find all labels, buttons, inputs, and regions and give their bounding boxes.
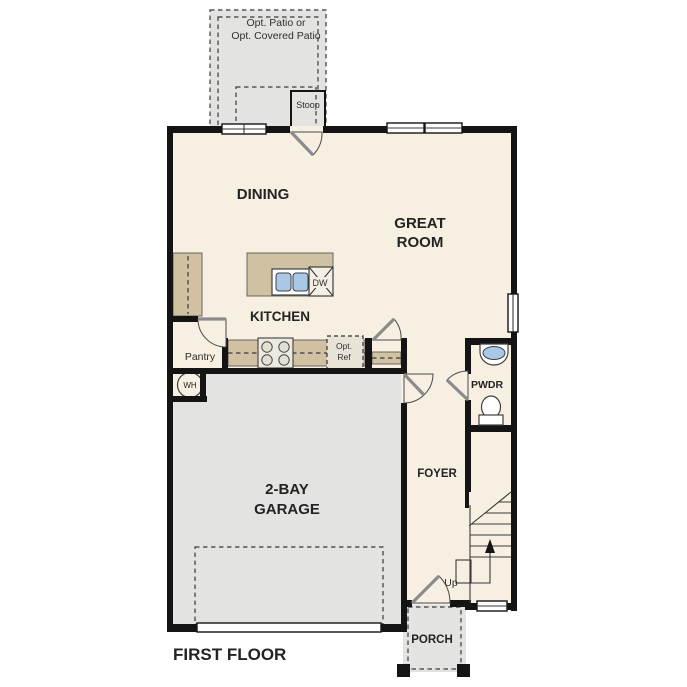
burner	[279, 342, 289, 352]
garage-label-1: 2-BAY	[265, 481, 309, 498]
garage-door	[197, 623, 381, 632]
wall-segment	[465, 338, 471, 374]
dishwasher-label: DW	[313, 278, 328, 288]
patio-label-2: Opt. Covered Patio	[231, 30, 320, 42]
garage-floor	[173, 374, 401, 624]
wall-segment	[167, 624, 197, 632]
island-fixtures: DW	[272, 267, 333, 296]
great-room-label-1: GREAT	[394, 215, 445, 232]
toilet-tank	[479, 415, 503, 425]
sink-basin	[293, 273, 308, 291]
wall-segment	[167, 126, 517, 133]
wall-segment	[200, 374, 206, 400]
burner	[262, 342, 272, 352]
garage-label-2: GARAGE	[254, 501, 320, 518]
dining-label: DINING	[237, 186, 290, 203]
opt-ref-label-2: Ref	[337, 352, 351, 362]
plan-title: FIRST FLOOR	[173, 645, 286, 664]
wall-segment	[465, 400, 471, 432]
wall-segment	[401, 338, 407, 374]
pantry-label: Pantry	[185, 351, 216, 363]
porch-label: PORCH	[411, 634, 453, 646]
burner	[279, 355, 289, 365]
floor-plan-drawing: DW Opt. Ref WH	[0, 0, 687, 687]
wall-segment	[401, 403, 407, 632]
up-label: Up	[444, 577, 458, 589]
sink-basin	[276, 273, 291, 291]
water-heater: WH	[178, 373, 203, 398]
wall-segment	[511, 126, 517, 611]
wall-segment	[465, 425, 517, 432]
water-heater-label: WH	[183, 381, 197, 390]
wall-segment	[167, 126, 173, 632]
porch-post	[457, 664, 470, 677]
burner	[262, 355, 272, 365]
wall-segment	[173, 316, 198, 322]
pwdr-label: PWDR	[471, 379, 503, 391]
wall-segment	[365, 338, 372, 374]
kitchen-label: KITCHEN	[250, 309, 310, 324]
patio-label-1: Opt. Patio or	[247, 17, 306, 29]
foyer-label: FOYER	[417, 468, 457, 480]
floor-plan-page: DW Opt. Ref WH	[0, 0, 687, 687]
stoop-label: Stoop	[296, 100, 320, 110]
opt-ref-label-1: Opt.	[336, 341, 352, 351]
porch-post	[397, 664, 410, 677]
sink-bowl	[483, 347, 505, 360]
great-room-label-2: ROOM	[397, 234, 444, 251]
